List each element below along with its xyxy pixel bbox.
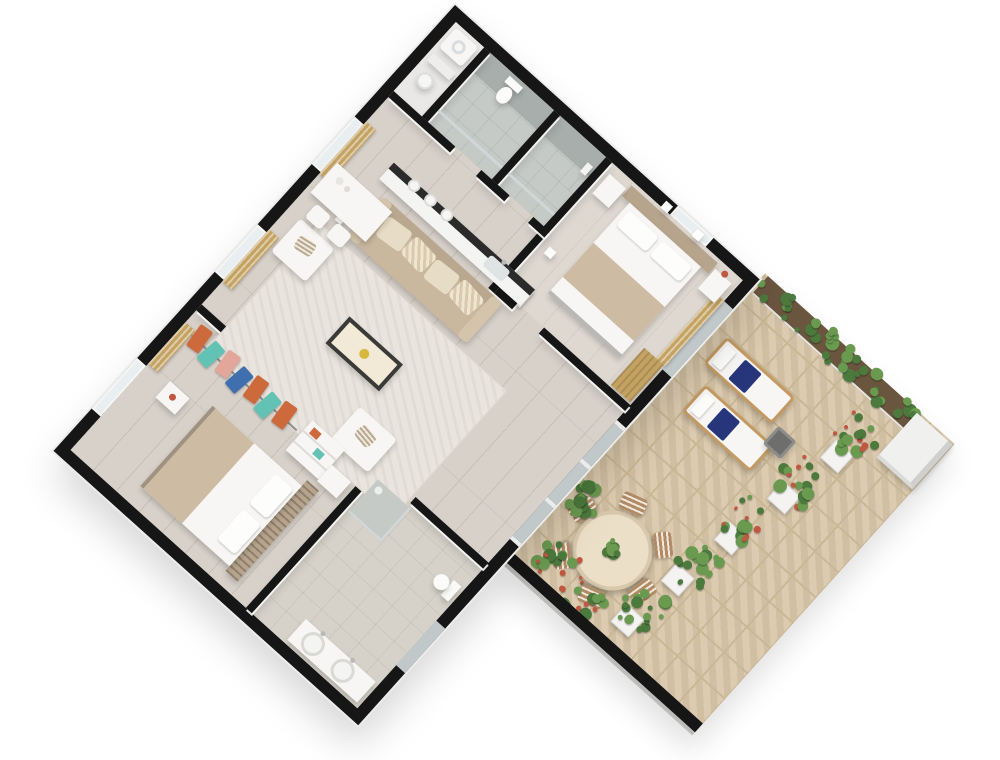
- foliage-dot: [617, 614, 624, 621]
- foliage-dot: [558, 568, 567, 577]
- desk-decor: [334, 175, 345, 186]
- flower-vase: [168, 392, 178, 402]
- foliage-dot: [578, 575, 582, 579]
- flower-dish: [357, 347, 371, 361]
- desk-decor: [343, 185, 351, 193]
- foliage-dot: [555, 540, 565, 550]
- foliage-dot: [572, 585, 584, 597]
- armchair-pillow: [293, 235, 318, 258]
- armchair-pillow: [353, 424, 377, 449]
- washer-door: [449, 37, 469, 57]
- shower-head: [373, 485, 384, 496]
- floor-plan-render: [0, 0, 1000, 760]
- foliage-dot: [592, 606, 599, 613]
